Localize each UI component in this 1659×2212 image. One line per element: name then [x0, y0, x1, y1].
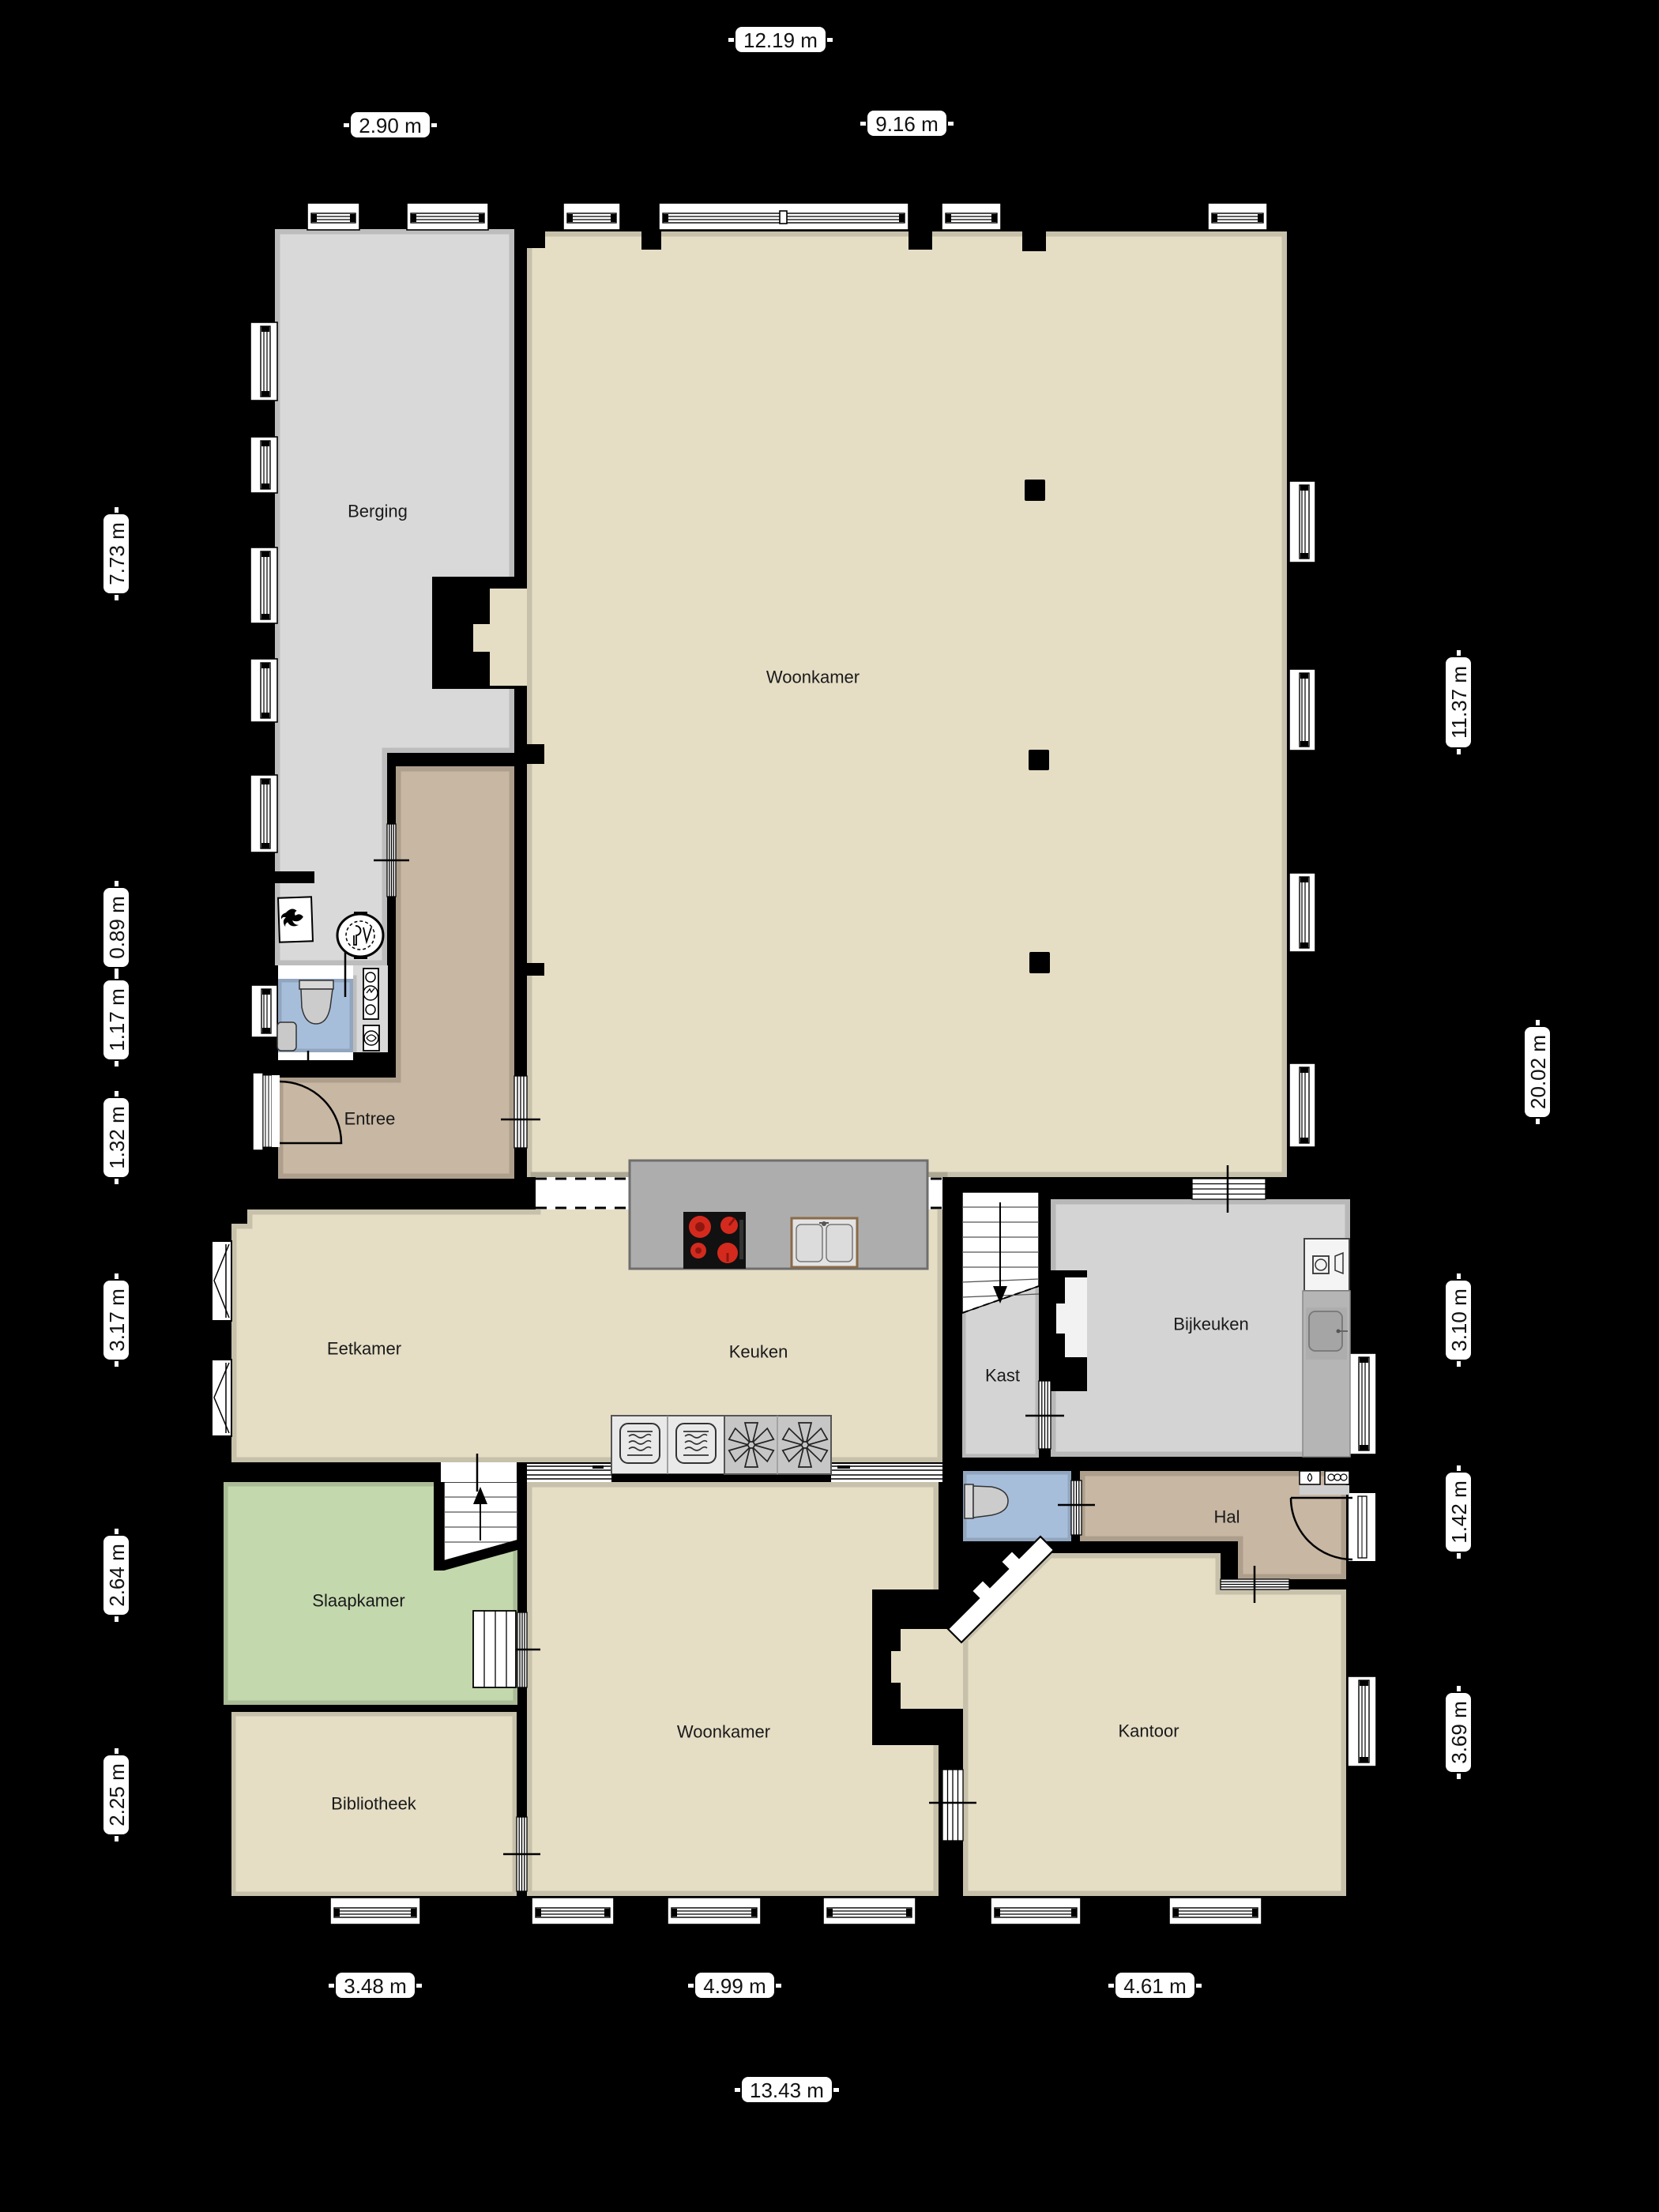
svg-text:4.61 m: 4.61 m	[1123, 1974, 1187, 1998]
svg-text:9.16 m: 9.16 m	[875, 112, 939, 136]
svg-text:20.02 m: 20.02 m	[1526, 1035, 1550, 1109]
svg-text:Keuken: Keuken	[729, 1342, 788, 1362]
svg-text:Bibliotheek: Bibliotheek	[331, 1794, 417, 1814]
svg-text:2.25 m: 2.25 m	[105, 1763, 129, 1826]
svg-text:2.90 m: 2.90 m	[359, 114, 422, 137]
svg-text:7.73 m: 7.73 m	[105, 522, 129, 585]
svg-text:Eetkamer: Eetkamer	[327, 1339, 401, 1359]
svg-text:13.43 m: 13.43 m	[750, 2078, 824, 2102]
svg-text:12.19 m: 12.19 m	[743, 28, 818, 52]
svg-text:Kantoor: Kantoor	[1118, 1721, 1179, 1741]
svg-text:Kast: Kast	[985, 1366, 1020, 1386]
svg-text:0.89 m: 0.89 m	[105, 896, 129, 959]
svg-text:4.99 m: 4.99 m	[703, 1974, 766, 1998]
svg-text:Slaapkamer: Slaapkamer	[312, 1591, 404, 1611]
svg-text:2.64 m: 2.64 m	[105, 1544, 129, 1607]
svg-text:1.32 m: 1.32 m	[105, 1106, 129, 1169]
svg-text:3.17 m: 3.17 m	[105, 1288, 129, 1352]
svg-text:Woonkamer: Woonkamer	[677, 1722, 770, 1742]
svg-text:Berging: Berging	[348, 502, 408, 521]
svg-text:1.42 m: 1.42 m	[1447, 1480, 1471, 1544]
svg-text:Woonkamer: Woonkamer	[766, 668, 860, 687]
svg-text:1.17 m: 1.17 m	[105, 988, 129, 1051]
svg-text:3.10 m: 3.10 m	[1447, 1288, 1471, 1352]
svg-text:3.48 m: 3.48 m	[344, 1974, 407, 1998]
svg-text:Entree: Entree	[344, 1109, 396, 1129]
svg-text:3.69 m: 3.69 m	[1447, 1701, 1471, 1764]
svg-text:Bijkeuken: Bijkeuken	[1173, 1315, 1248, 1334]
svg-text:Hal: Hal	[1213, 1507, 1240, 1527]
svg-text:11.37 m: 11.37 m	[1447, 666, 1471, 739]
